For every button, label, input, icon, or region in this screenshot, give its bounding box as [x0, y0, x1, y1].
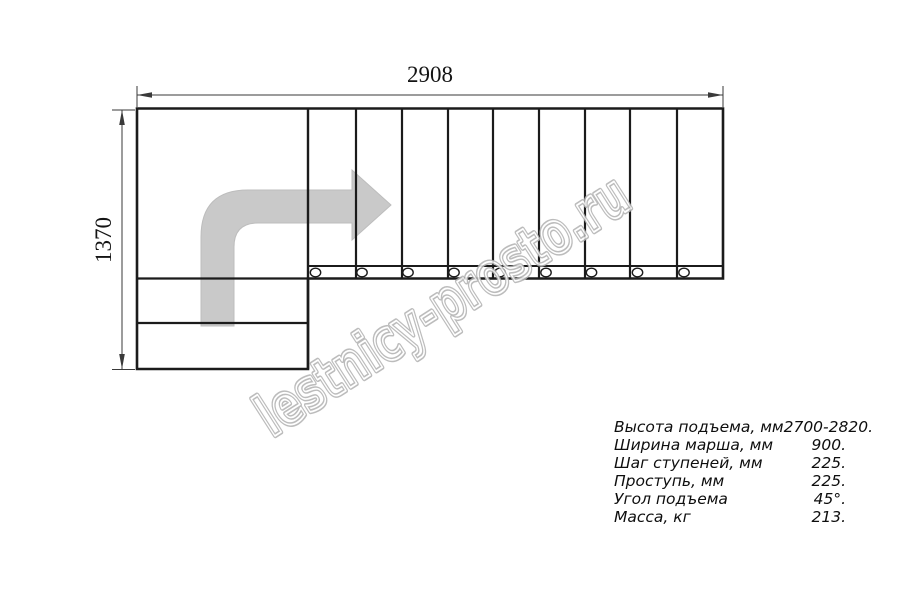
spec-value: 900. — [811, 437, 846, 455]
spec-value: 2700-2820. — [784, 419, 873, 437]
spec-row: Проступь, мм 225. — [614, 473, 846, 491]
staircase-plan-screenshot: lestnicy-prosto.ru lestnicy-prosto.ru 29… — [0, 0, 900, 600]
spec-row: Масса, кг 213. — [614, 509, 846, 527]
bolt-circle — [632, 268, 642, 277]
spec-label: Угол подъема — [614, 491, 728, 509]
dim-arrow-right-icon — [708, 92, 723, 98]
spec-label: Высота подъема, мм — [614, 419, 784, 437]
spec-label: Проступь, мм — [614, 473, 724, 491]
bolt-circle — [357, 268, 367, 277]
dimension-height-label: 1370 — [91, 217, 117, 263]
spec-row: Ширина марша, мм 900. — [614, 437, 846, 455]
dimension-width-label: 2908 — [340, 62, 520, 88]
direction-arrow — [201, 170, 391, 326]
spec-value: 225. — [811, 455, 846, 473]
spec-label: Масса, кг — [614, 509, 691, 527]
spec-label: Ширина марша, мм — [614, 437, 773, 455]
bolt-circle — [679, 268, 689, 277]
dim-arrow-left-icon — [137, 92, 152, 98]
spec-value: 213. — [811, 509, 846, 527]
bolt-circle — [403, 268, 413, 277]
dim-arrow-up-icon — [119, 110, 125, 125]
spec-row: Шаг ступеней, мм 225. — [614, 455, 846, 473]
spec-label: Шаг ступеней, мм — [614, 455, 763, 473]
bolt-circle — [310, 268, 320, 277]
spec-row: Угол подъема 45°. — [614, 491, 846, 509]
spec-value: 225. — [811, 473, 846, 491]
spec-table: Высота подъема, мм 2700-2820. Ширина мар… — [614, 419, 846, 526]
spec-row: Высота подъема, мм 2700-2820. — [614, 419, 846, 437]
dim-arrow-down-icon — [119, 354, 125, 369]
bolt-circle — [586, 268, 596, 277]
spec-value: 45°. — [814, 491, 846, 509]
